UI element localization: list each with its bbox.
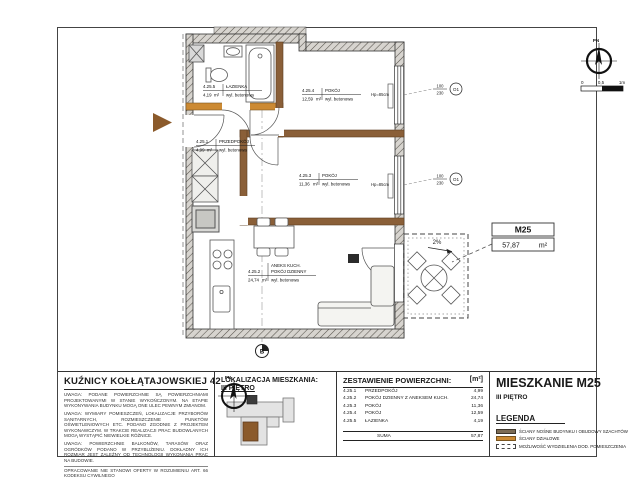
dining-table — [254, 226, 294, 248]
sofa — [318, 266, 394, 326]
toilet — [211, 69, 228, 82]
window-mark: O1 — [453, 87, 460, 92]
room-floor: wyl. betonowa — [226, 93, 254, 98]
room-floor: wyl. betonowa — [325, 97, 353, 102]
scale-1m: 1m — [619, 80, 626, 85]
room-area-unit: m² — [313, 182, 319, 187]
room-name: PRZEDPOKÓJ — [219, 139, 249, 144]
room-floor: wyl. betonowa — [271, 278, 299, 283]
stove-burner — [213, 261, 221, 269]
room-floor: wyl. betonowa — [219, 148, 247, 153]
room-floor: wyl. betonowa — [322, 182, 350, 187]
window-marker: Hp=85cm 100 230 O1 — [371, 173, 462, 187]
unit-area-box: M25 57,87 m² — [452, 223, 554, 262]
unit-area: 57,87 — [502, 243, 520, 250]
room-area-unit: m² — [316, 97, 322, 102]
kitchen-counter — [210, 240, 234, 329]
floor-plan-drawing: Hp=85cm 100 230 O1 Hp=85cm 100 230 O1 — [0, 0, 640, 480]
section-letter: B — [260, 350, 265, 356]
room-no: 4.25.4 — [302, 88, 315, 93]
room-no: 4.25.5 — [203, 84, 216, 89]
room-name: POKÓJ — [322, 173, 337, 178]
kitchen-sink — [213, 286, 230, 312]
window-dim-width: 100 — [437, 174, 445, 179]
window-marker: Hp=85cm 100 230 O1 — [371, 83, 462, 97]
compass-north-label: PN — [593, 38, 599, 43]
room-area: 12,59 — [302, 97, 314, 102]
slope-label: 2% — [433, 240, 442, 246]
room-area: 4,99 — [196, 148, 205, 153]
entrance-arrow — [153, 113, 172, 132]
section-mark: B — [256, 345, 269, 358]
window-dim-height: 230 — [437, 181, 445, 186]
shafts — [192, 150, 218, 202]
neighbour-wall — [214, 27, 306, 34]
fridge — [192, 206, 219, 232]
window-dim-width: 100 — [437, 84, 445, 89]
windows — [394, 66, 404, 302]
drawing-sheet: { "plan": { "area_unit": "m²", "floor_fi… — [0, 0, 640, 480]
room-no: 4.25.2 — [248, 269, 261, 274]
window-mark: O1 — [453, 177, 460, 182]
stove-burner — [224, 261, 232, 269]
scale-0: 0 — [581, 80, 584, 85]
room-area-unit: m² — [207, 148, 213, 153]
balcony-chair — [408, 252, 426, 270]
scale-bar: 0 0,5 1m — [581, 80, 625, 91]
chair — [275, 218, 288, 226]
coffee-table — [348, 254, 359, 263]
unit-area-unit: m² — [539, 243, 548, 250]
room-name: POKÓJ DZIENNY — [271, 269, 306, 274]
balcony-chair — [408, 286, 426, 304]
window-sill-note: Hp=85cm — [371, 182, 390, 187]
chair — [257, 248, 270, 256]
room-area: 24,74 — [248, 278, 260, 283]
chair — [257, 218, 270, 226]
scale-05: 0,5 — [598, 80, 605, 85]
window-dim-height: 230 — [437, 91, 445, 96]
room-name: ŁAZIENKA — [226, 84, 247, 89]
radiator — [388, 84, 393, 198]
window-sill-note: Hp=85cm — [371, 92, 390, 97]
compass-icon: PN — [581, 38, 617, 79]
chair — [275, 248, 288, 256]
stove-burner — [224, 250, 232, 258]
room-no: 4.25.1 — [196, 139, 209, 144]
room-area-unit: m² — [214, 93, 220, 98]
balcony-chair — [442, 286, 460, 304]
stove-burner — [213, 250, 221, 258]
balcony-chair — [442, 252, 460, 270]
room-area: 4,19 — [203, 93, 212, 98]
room-area-unit: m² — [262, 278, 268, 283]
balcony: 2% — [404, 234, 468, 318]
room-area: 11,36 — [299, 182, 310, 187]
room-name: ANEKS KUCH. — [271, 263, 301, 268]
unit-id: M25 — [515, 225, 532, 235]
room-name: POKÓJ — [325, 88, 340, 93]
room-no: 4.25.3 — [299, 173, 312, 178]
